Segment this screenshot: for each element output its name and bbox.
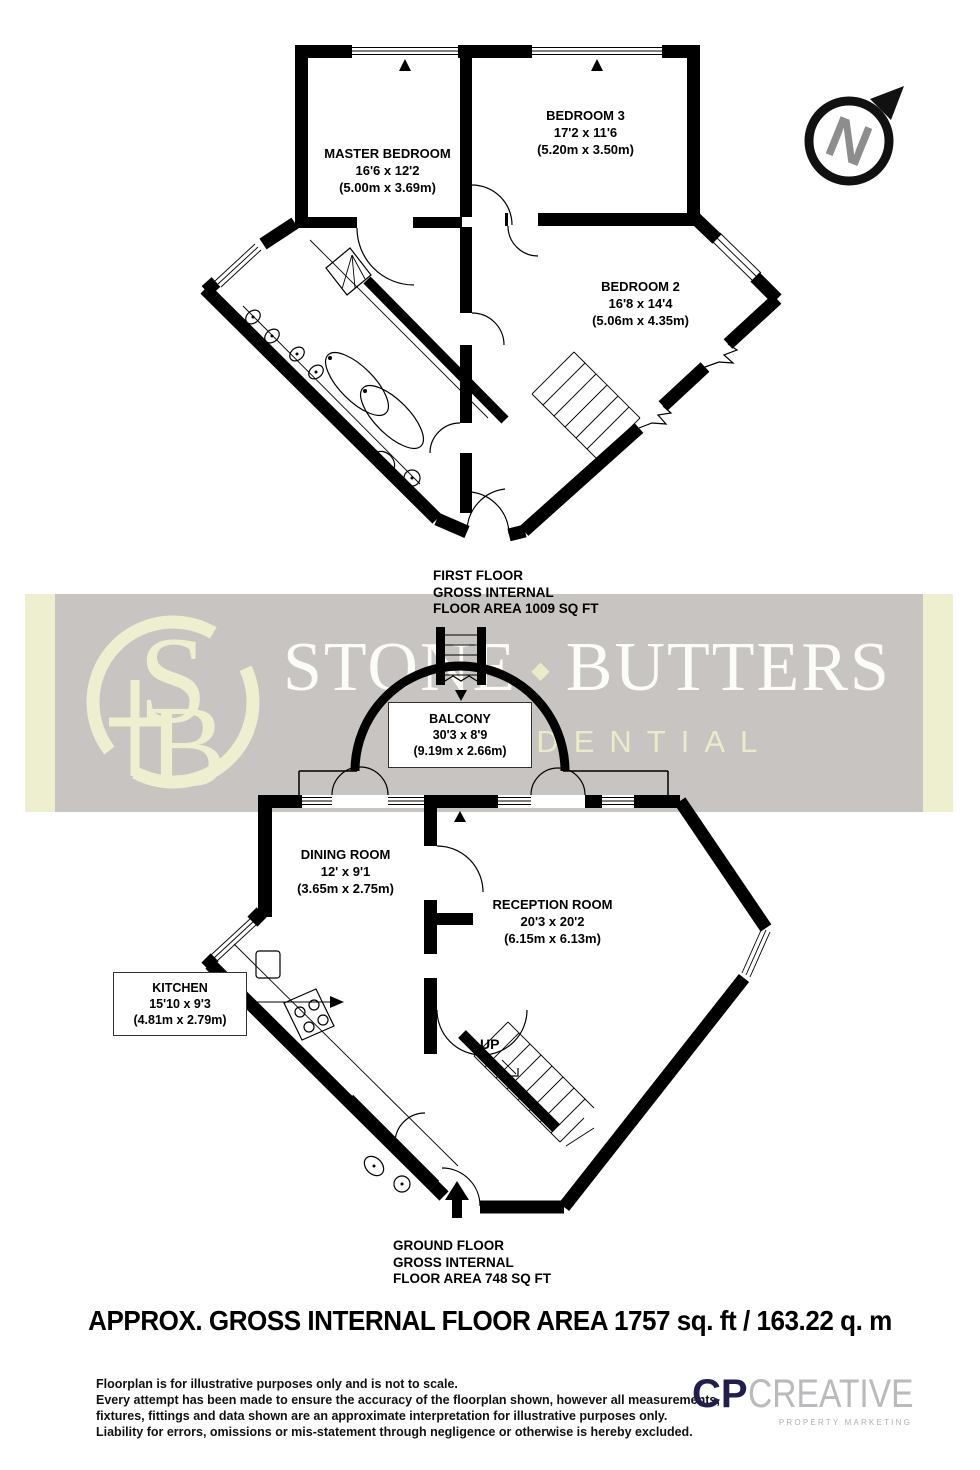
room-dims-ft: 15'10 x 9'3	[114, 996, 246, 1012]
caption-line: FIRST FLOOR	[433, 568, 599, 585]
room-dims-m: (4.81m x 2.79m)	[114, 1012, 246, 1028]
first-floor-caption: FIRST FLOOR GROSS INTERNAL FLOOR AREA 10…	[433, 568, 599, 618]
disclaimer-line: Liability for errors, omissions or mis-s…	[96, 1424, 720, 1440]
room-label-dining-room: DINING ROOM 12' x 9'1 (3.65m x 2.75m)	[263, 846, 428, 897]
disclaimer-line: fixtures, fittings and data shown are an…	[96, 1408, 720, 1424]
room-dims-m: (5.00m x 3.69m)	[300, 179, 475, 196]
disclaimer-line: Every attempt has been made to ensure th…	[96, 1392, 720, 1408]
caption-line: GROUND FLOOR	[393, 1238, 551, 1255]
cp-creative-logo: CP CREATIVE PROPERTY MARKETING	[692, 1374, 912, 1427]
room-dims-ft: 30'3 x 8'9	[389, 727, 531, 743]
ground-floor-caption: GROUND FLOOR GROSS INTERNAL FLOOR AREA 7…	[393, 1238, 551, 1288]
compass-letter: N	[817, 103, 880, 179]
floorplan-page: S B STONE ◆ BUTTERS RESIDENTIAL N	[0, 0, 980, 1470]
room-name: BEDROOM 3	[503, 107, 668, 124]
room-label-balcony: BALCONY 30'3 x 8'9 (9.19m x 2.66m)	[388, 702, 532, 768]
room-dims-m: (6.15m x 6.13m)	[460, 930, 645, 947]
room-dims-ft: 16'6 x 12'2	[300, 162, 475, 179]
caption-line: FLOOR AREA 1009 SQ FT	[433, 601, 599, 618]
cp-logo-prefix: CP	[692, 1374, 748, 1414]
caption-line: FLOOR AREA 748 SQ FT	[393, 1271, 551, 1288]
kitchen-fixtures	[234, 944, 458, 1166]
room-dims-ft: 12' x 9'1	[263, 863, 428, 880]
caption-line: GROSS INTERNAL	[433, 585, 599, 602]
compass-north-icon: N	[809, 86, 904, 181]
cp-logo-name: CREATIVE	[748, 1374, 914, 1414]
room-name: KITCHEN	[114, 980, 246, 996]
room-name: DINING ROOM	[263, 846, 428, 863]
room-dims-ft: 16'8 x 14'4	[558, 295, 723, 312]
room-label-master-bedroom: MASTER BEDROOM 16'6 x 12'2 (5.00m x 3.69…	[300, 145, 475, 196]
stairs-up-label: UP	[480, 1036, 499, 1052]
room-label-bedroom-2: BEDROOM 2 16'8 x 14'4 (5.06m x 4.35m)	[558, 278, 723, 329]
room-dims-m: (5.06m x 4.35m)	[558, 312, 723, 329]
room-label-reception-room: RECEPTION ROOM 20'3 x 20'2 (6.15m x 6.13…	[460, 896, 645, 947]
room-dims-m: (5.20m x 3.50m)	[503, 141, 668, 158]
room-label-bedroom-3: BEDROOM 3 17'2 x 11'6 (5.20m x 3.50m)	[503, 107, 668, 158]
room-name: BALCONY	[389, 711, 531, 727]
disclaimer-line: Floorplan is for illustrative purposes o…	[96, 1376, 720, 1392]
entrance-arrow-icon	[445, 1181, 469, 1218]
room-name: BEDROOM 2	[558, 278, 723, 295]
room-name: RECEPTION ROOM	[460, 896, 645, 913]
cp-logo-tagline: PROPERTY MARKETING	[692, 1418, 912, 1427]
room-dims-m: (9.19m x 2.66m)	[389, 743, 531, 759]
room-dims-ft: 20'3 x 20'2	[460, 913, 645, 930]
room-dims-ft: 17'2 x 11'6	[503, 124, 668, 141]
room-label-kitchen: KITCHEN 15'10 x 9'3 (4.81m x 2.79m)	[113, 972, 247, 1036]
room-dims-m: (3.65m x 2.75m)	[263, 880, 428, 897]
total-area-summary: APPROX. GROSS INTERNAL FLOOR AREA 1757 s…	[34, 1305, 945, 1337]
disclaimer-text: Floorplan is for illustrative purposes o…	[96, 1376, 720, 1440]
room-name: MASTER BEDROOM	[300, 145, 475, 162]
caption-line: GROSS INTERNAL	[393, 1255, 551, 1272]
